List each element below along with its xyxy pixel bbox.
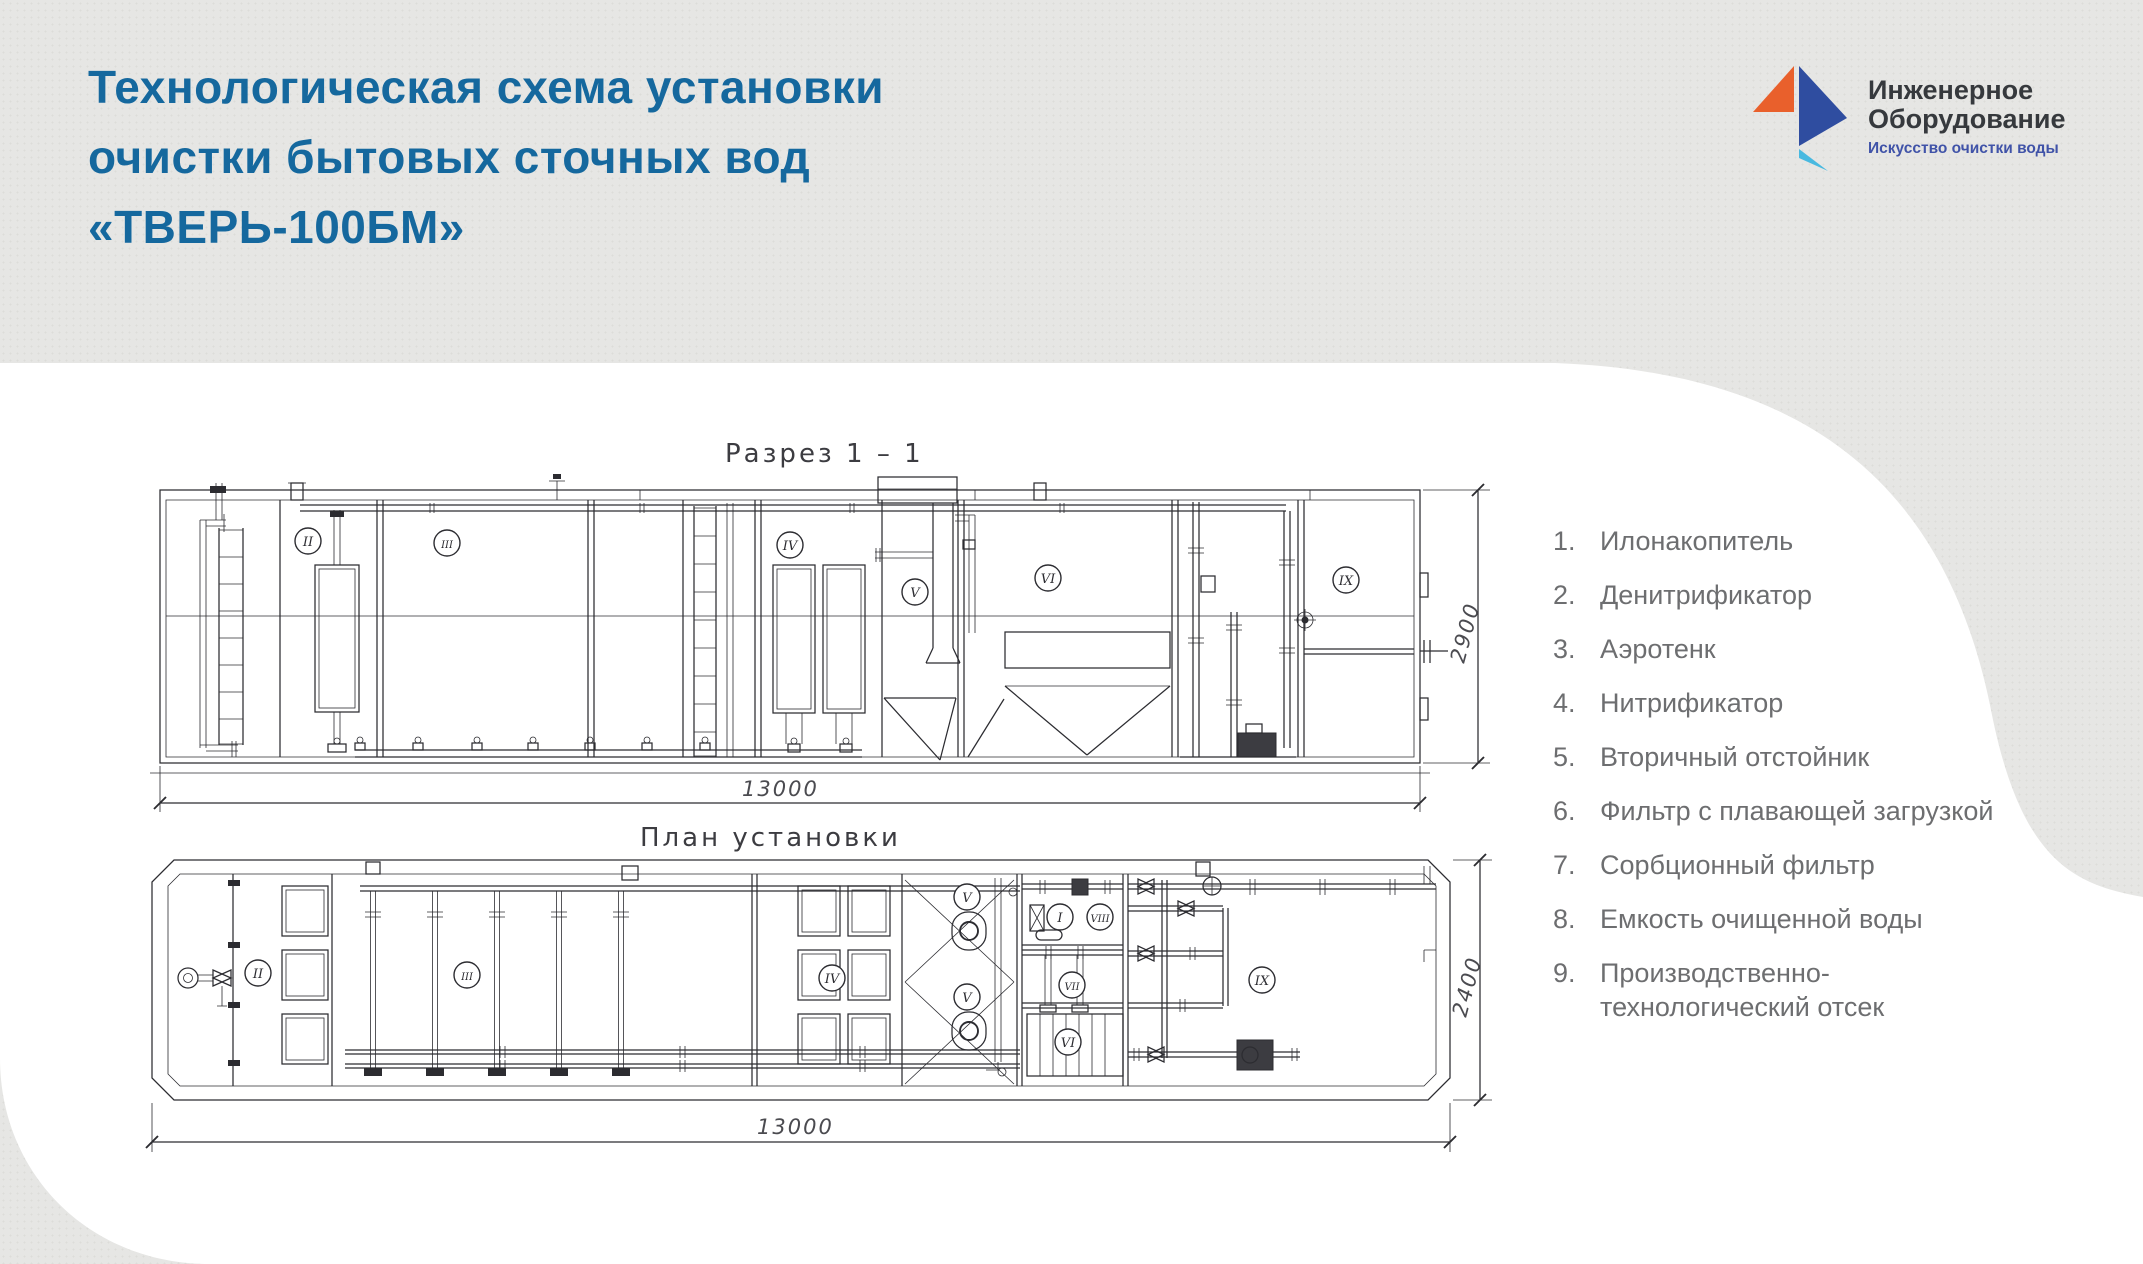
plan-aeration-blocks-left bbox=[282, 886, 328, 1064]
compartment-label-IX: IX bbox=[1249, 967, 1275, 993]
svg-text:IV: IV bbox=[824, 972, 841, 987]
svg-text:I: I bbox=[1056, 911, 1063, 926]
compartment-label-V: V bbox=[954, 884, 980, 910]
svg-text:III: III bbox=[440, 540, 454, 551]
legend-list: 1.Илонакопитель 2.Денитрификатор 3.Аэрот… bbox=[1553, 524, 2033, 1024]
bottom-pipe-valves bbox=[355, 737, 710, 750]
dim-plan-width: 2400 bbox=[1448, 954, 1487, 1020]
compartment-label-VI: VI bbox=[1055, 1029, 1081, 1055]
legend-item: 3.Аэротенк bbox=[1553, 632, 2033, 666]
logo-pinwheel-icon bbox=[1748, 54, 1858, 176]
svg-text:III: III bbox=[460, 972, 474, 983]
legend-item: 7.Сорбционный фильтр bbox=[1553, 848, 2033, 882]
svg-text:II: II bbox=[252, 967, 264, 982]
page-title: Технологическая схема установки очистки … bbox=[88, 52, 1488, 262]
legend-item: 4.Нитрификатор bbox=[1553, 686, 2033, 720]
compartment-label-VIII: VIII bbox=[1087, 904, 1113, 930]
plan-view: План установки bbox=[146, 823, 1492, 1152]
svg-text:IX: IX bbox=[1254, 974, 1270, 989]
legend-item: 2.Денитрификатор bbox=[1553, 578, 2033, 612]
company-logo: Инженерное Оборудование Искусство очистк… bbox=[1748, 48, 2128, 178]
svg-text:V: V bbox=[910, 586, 921, 601]
compartment-label-VI: VI bbox=[1035, 565, 1061, 591]
compartment-label-IV: IV bbox=[777, 532, 803, 558]
page-title-line-2: очистки бытовых сточных вод bbox=[88, 122, 1488, 192]
logo-company-name: Инженерное Оборудование bbox=[1868, 76, 2065, 134]
svg-text:VI: VI bbox=[1061, 1036, 1076, 1051]
dim-section-height: 2900 bbox=[1446, 600, 1485, 666]
compartment-label-V: V bbox=[954, 984, 980, 1010]
legend: 1.Илонакопитель 2.Денитрификатор 3.Аэрот… bbox=[1553, 524, 2033, 1024]
legend-item: 9.Производственно-технологический отсек bbox=[1553, 956, 2033, 1024]
svg-text:V: V bbox=[962, 991, 973, 1006]
page-title-line-3: «ТВЕРЬ-100БМ» bbox=[88, 192, 1488, 262]
compartment-label-V: V bbox=[902, 579, 928, 605]
svg-text:VI: VI bbox=[1041, 572, 1056, 587]
compartment-label-I: I bbox=[1047, 904, 1073, 930]
plan-view-title: План установки bbox=[640, 823, 901, 853]
svg-text:II: II bbox=[302, 535, 314, 550]
page-title-line-1: Технологическая схема установки bbox=[88, 52, 1488, 122]
svg-text:IX: IX bbox=[1338, 574, 1354, 589]
slide-page: { "page": { "background": "#e6e6e4", "pa… bbox=[0, 0, 2143, 1264]
compartment-label-IX: IX bbox=[1333, 567, 1359, 593]
svg-text:V: V bbox=[962, 891, 973, 906]
dim-section-length: 13000 bbox=[742, 777, 819, 801]
compartment-label-VII: VII bbox=[1059, 972, 1085, 998]
section-view: Разрез 1 – 1 bbox=[150, 439, 1490, 812]
compartment-label-II: II bbox=[295, 528, 321, 554]
compartment-label-IV: IV bbox=[819, 965, 845, 991]
compartment-label-III: III bbox=[454, 962, 480, 988]
compartment-label-III: III bbox=[434, 530, 460, 556]
plan-compartment-labels: II III IV V V I VIII bbox=[245, 884, 1275, 1055]
legend-item: 8.Емкость очищенной воды bbox=[1553, 902, 2033, 936]
legend-item: 5.Вторичный отстойник bbox=[1553, 740, 2033, 774]
legend-item: 6.Фильтр с плавающей загрузкой bbox=[1553, 794, 2033, 828]
section-view-title: Разрез 1 – 1 bbox=[725, 439, 924, 469]
compartment-label-II: II bbox=[245, 960, 271, 986]
svg-text:VIII: VIII bbox=[1090, 914, 1110, 925]
plan-air-droppers bbox=[364, 891, 630, 1076]
technical-drawing: Разрез 1 – 1 bbox=[0, 420, 1560, 1170]
plan-dimensions: 2400 13000 bbox=[146, 854, 1492, 1152]
svg-text:VII: VII bbox=[1064, 982, 1080, 993]
plan-piping-manifold bbox=[1128, 866, 1436, 1070]
logo-tagline: Искусство очистки воды bbox=[1868, 140, 2059, 158]
dim-plan-length: 13000 bbox=[757, 1115, 834, 1139]
svg-text:IV: IV bbox=[782, 539, 799, 554]
legend-item: 1.Илонакопитель bbox=[1553, 524, 2033, 558]
